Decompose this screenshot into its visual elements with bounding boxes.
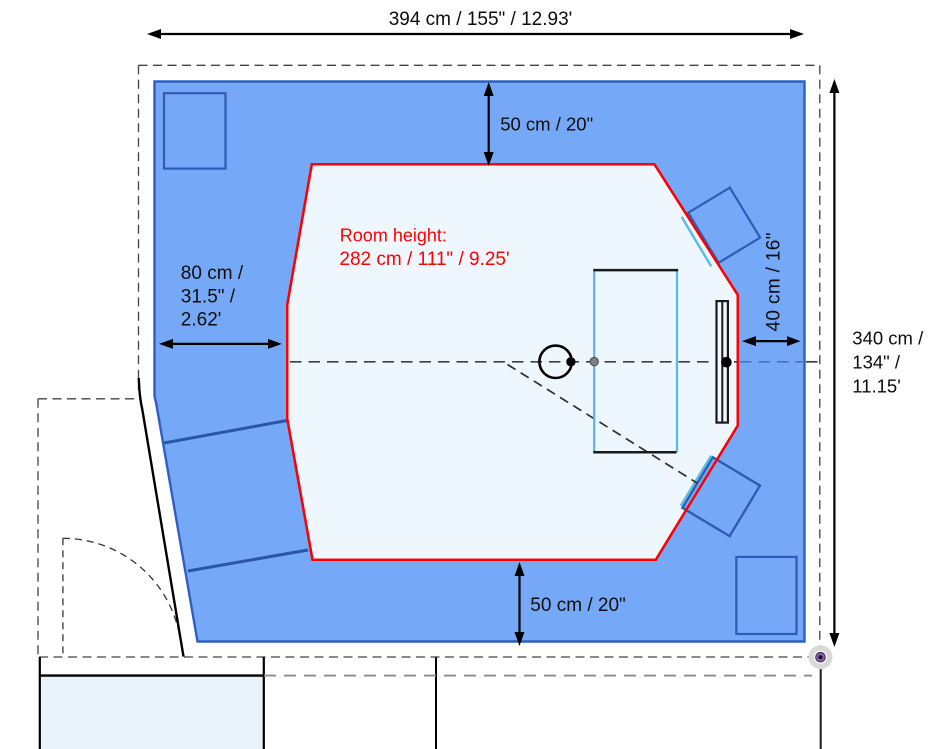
svg-text:2.62': 2.62' [181, 310, 222, 331]
svg-text:40 cm / 16": 40 cm / 16" [764, 232, 785, 331]
svg-text:50 cm / 20": 50 cm / 20" [530, 595, 625, 616]
svg-text:Room height:: Room height: [340, 225, 447, 245]
svg-text:11.15': 11.15' [852, 375, 900, 396]
svg-text:31.5" /: 31.5" / [181, 286, 236, 307]
svg-text:134" /: 134" / [852, 352, 901, 373]
svg-text:282 cm / 111" / 9.25': 282 cm / 111" / 9.25' [339, 249, 509, 270]
svg-text:50 cm / 20": 50 cm / 20" [500, 113, 593, 134]
svg-text:80 cm /: 80 cm / [181, 263, 244, 284]
svg-text:394 cm / 155" / 12.93': 394 cm / 155" / 12.93' [389, 9, 573, 30]
svg-text:340 cm /: 340 cm / [852, 328, 924, 349]
